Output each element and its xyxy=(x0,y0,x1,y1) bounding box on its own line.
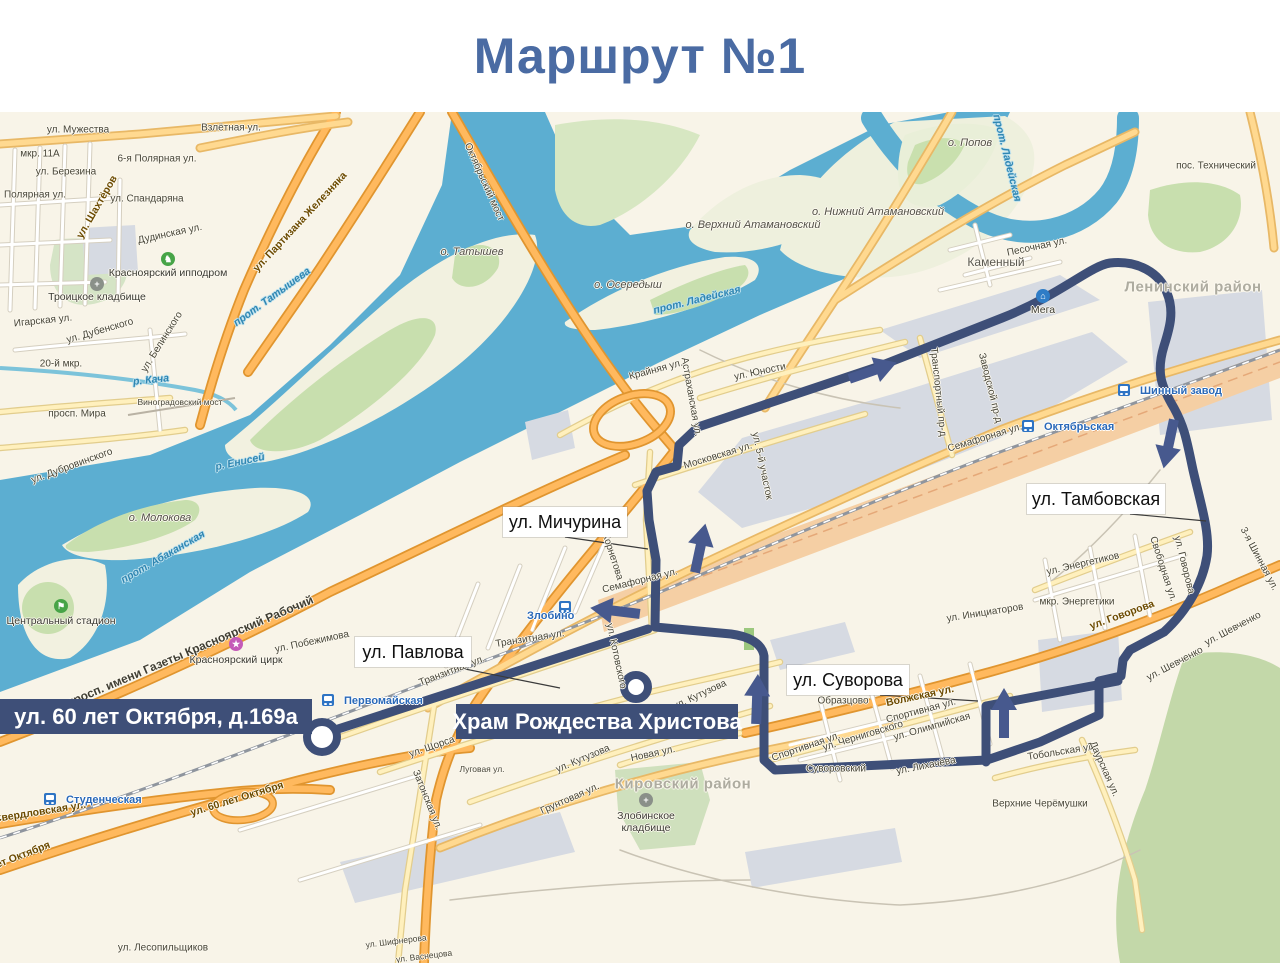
street-callout: ул. Павлова xyxy=(355,637,471,667)
street-callout: ул. Мичурина xyxy=(503,507,627,537)
route-banner: Храм Рождества Христова xyxy=(456,704,738,739)
street-callout: ул. Тамбовская xyxy=(1027,484,1165,514)
title-bar: Маршрут №1 xyxy=(0,0,1280,112)
route-banner: ул. 60 лет Октября, д.169а xyxy=(0,699,312,734)
page-title: Маршрут №1 xyxy=(474,27,807,85)
route-map: ул. МужестваВзлётная ул.мкр. 11А6-я Поля… xyxy=(0,0,1280,963)
church-stop xyxy=(624,675,648,699)
map-base xyxy=(0,0,1280,963)
street-callout: ул. Суворова xyxy=(787,665,909,695)
screenshot-stage: ул. МужестваВзлётная ул.мкр. 11А6-я Поля… xyxy=(0,0,1280,963)
